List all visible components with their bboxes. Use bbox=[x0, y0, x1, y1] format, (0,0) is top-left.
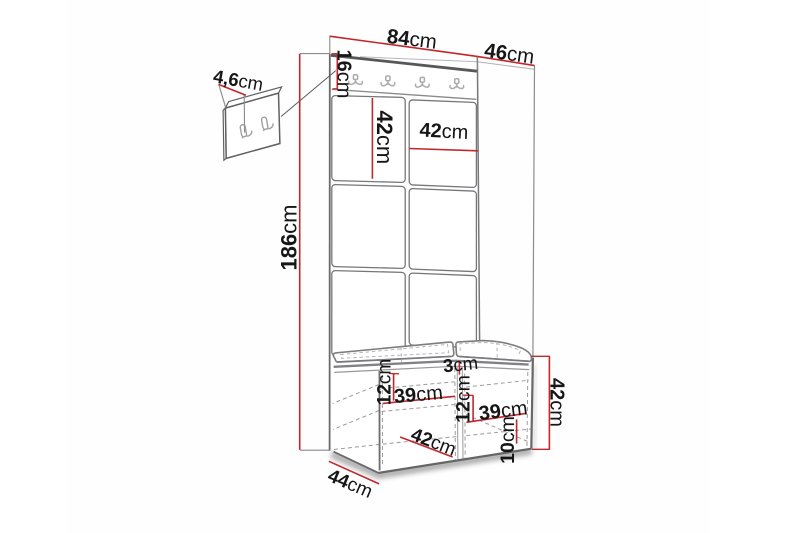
svg-text:12cm: 12cm bbox=[375, 359, 396, 405]
svg-text:42cm: 42cm bbox=[372, 110, 397, 164]
svg-text:42cm: 42cm bbox=[546, 378, 568, 427]
svg-text:42cm: 42cm bbox=[419, 119, 469, 144]
svg-text:16cm: 16cm bbox=[333, 50, 355, 99]
svg-text:186cm: 186cm bbox=[277, 204, 302, 270]
svg-text:39cm: 39cm bbox=[393, 382, 444, 408]
svg-text:3cm: 3cm bbox=[442, 352, 479, 377]
svg-text:10cm: 10cm bbox=[497, 416, 519, 464]
svg-text:12cm: 12cm bbox=[453, 375, 475, 423]
